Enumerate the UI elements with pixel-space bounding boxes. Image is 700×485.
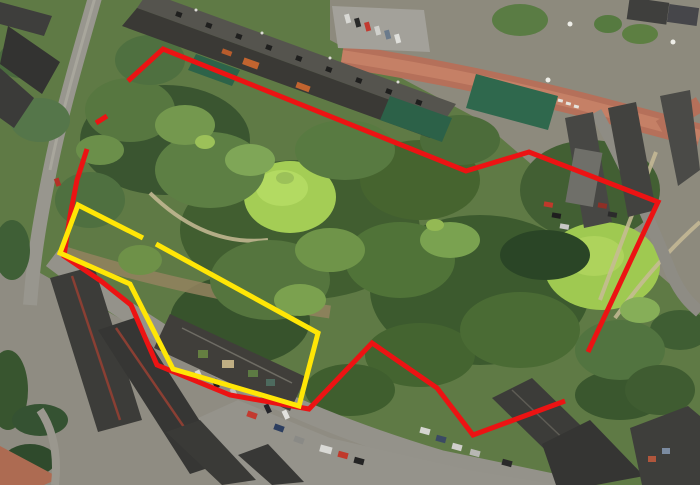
satellite-map-view[interactable] [0,0,700,485]
pond-shadow [500,230,590,280]
aerial-imagery [0,0,700,485]
parking-lot-top [332,6,430,52]
